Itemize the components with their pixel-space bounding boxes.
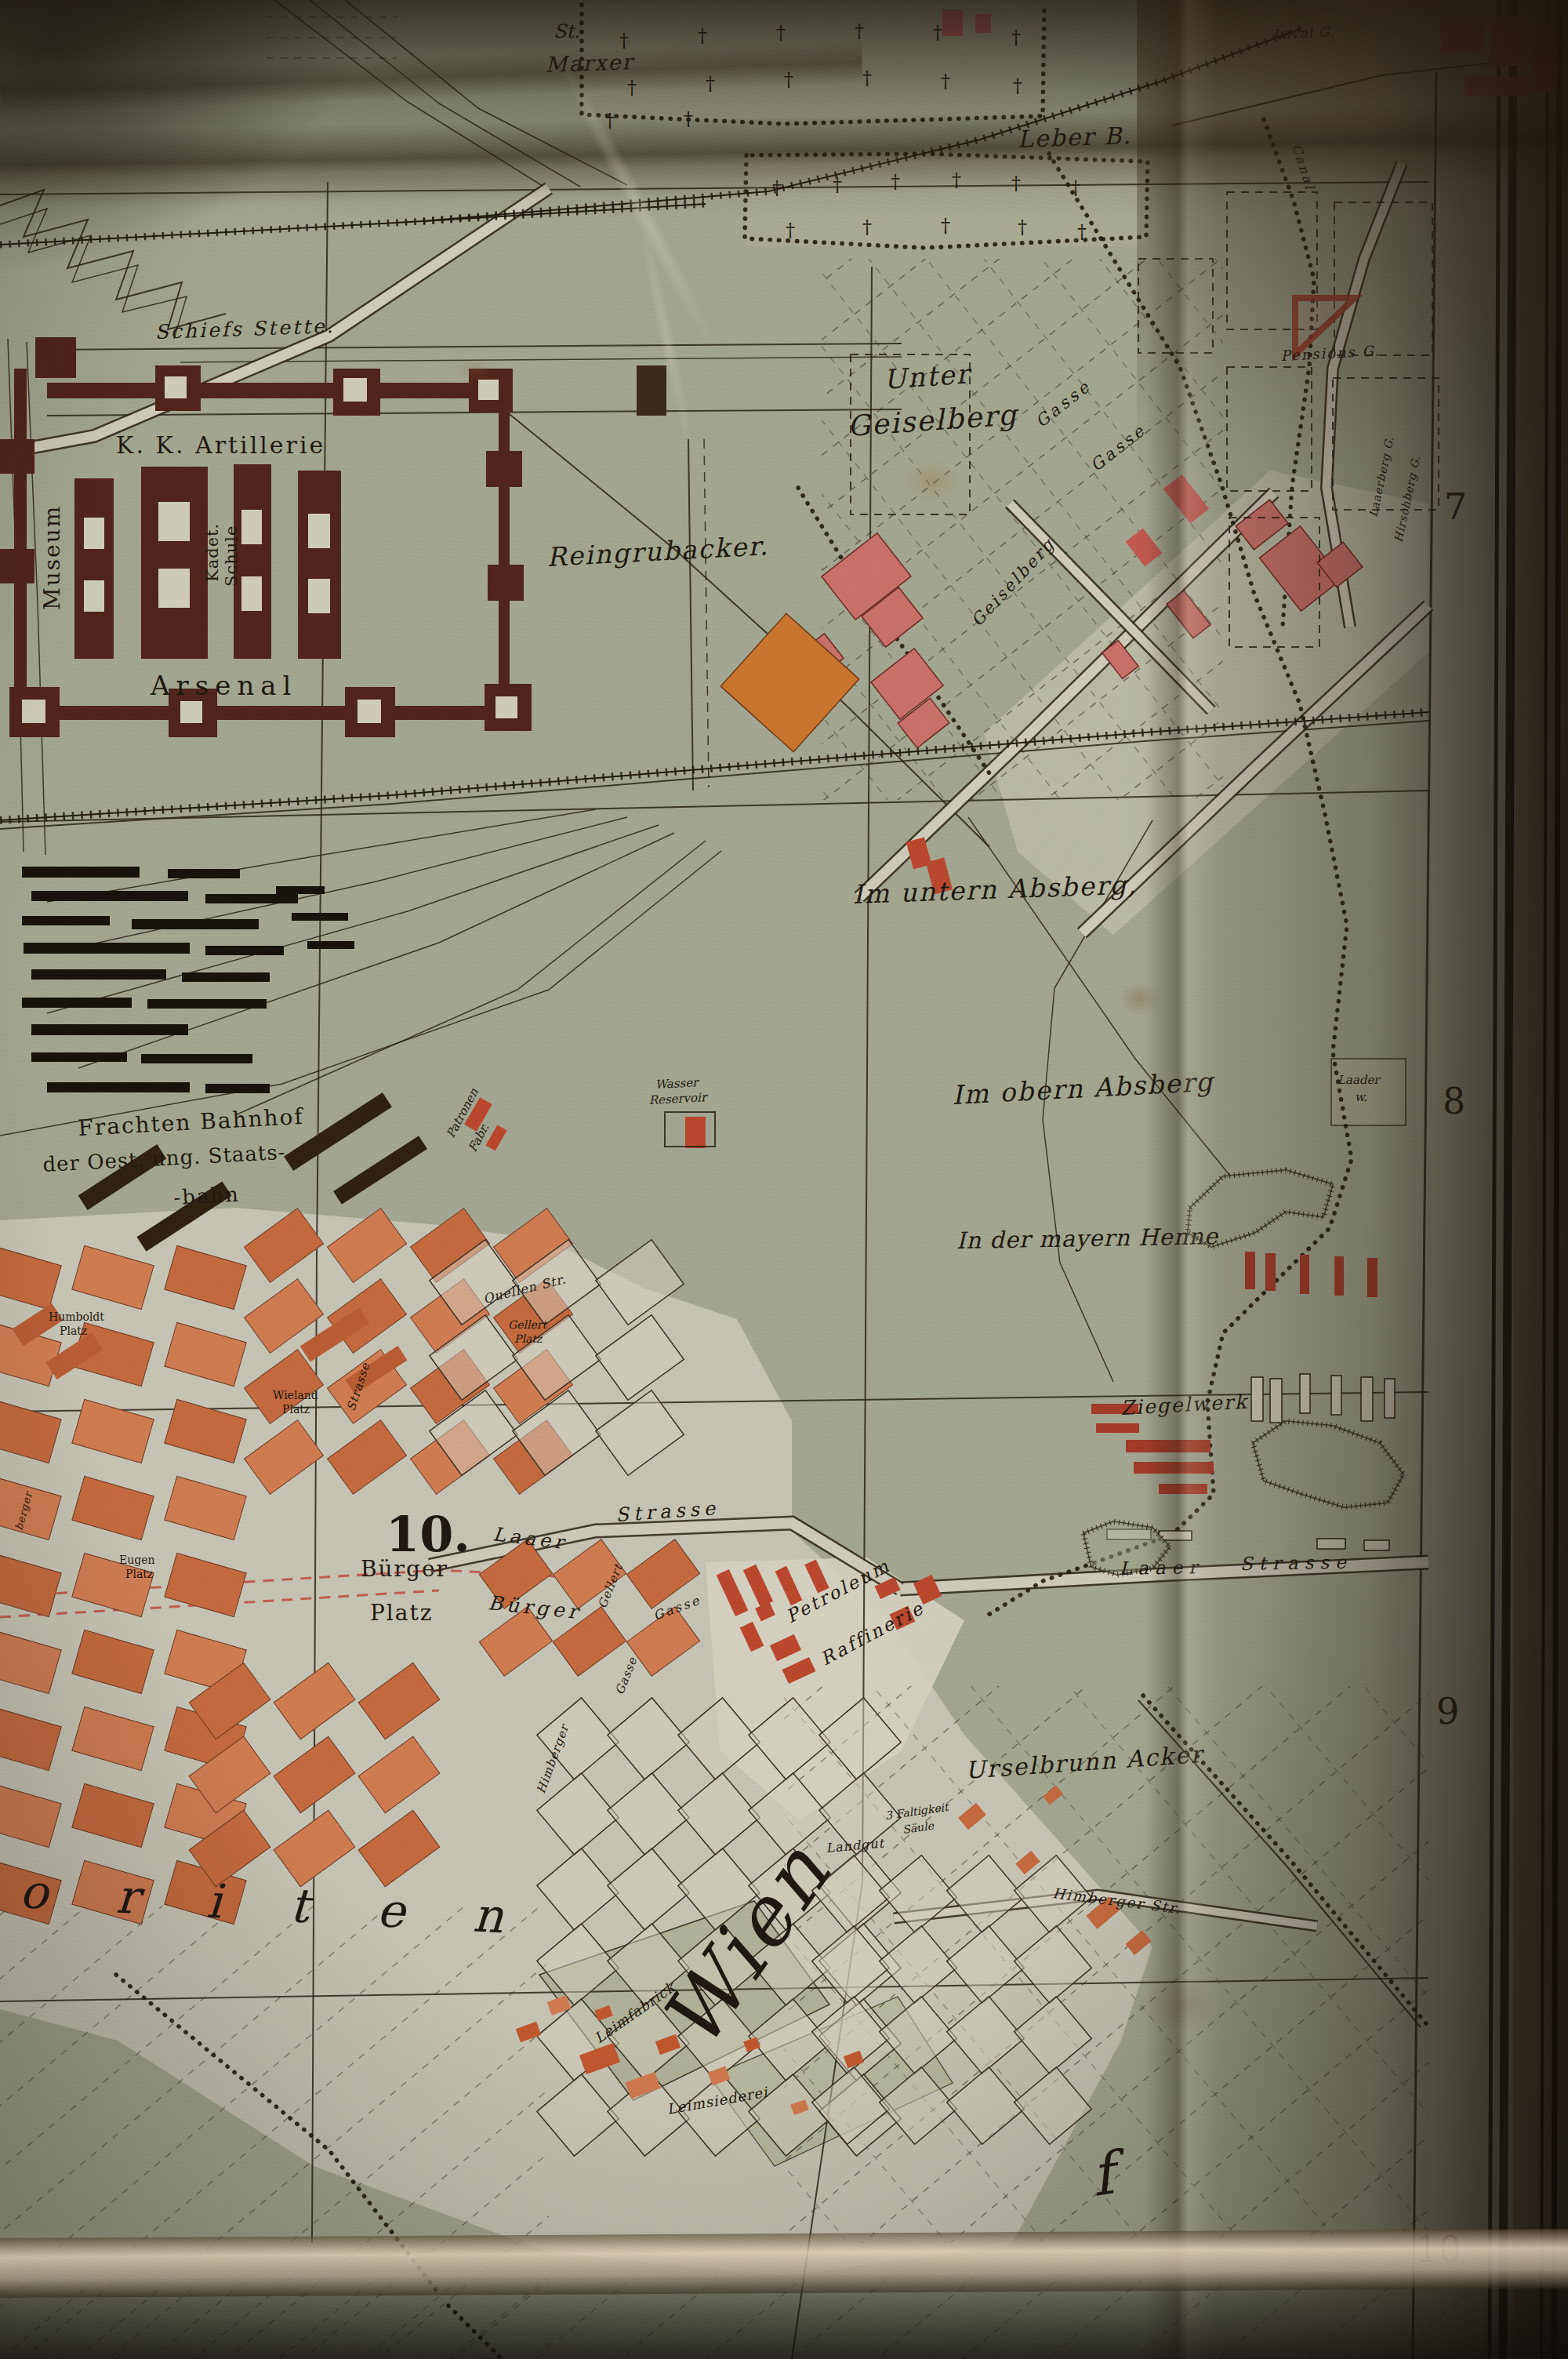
folded-paper-map-photo: †††††††††††††††††††††††††St.MarxerLeber … bbox=[0, 0, 1568, 2359]
map-label-kadet: Kadet. bbox=[203, 523, 222, 582]
grid-number-9: 9 bbox=[1436, 1690, 1459, 1732]
map-label-platz: Platz bbox=[514, 1332, 543, 1345]
building bbox=[165, 376, 187, 398]
cemetery-cross-icon: † bbox=[619, 30, 629, 52]
building bbox=[0, 439, 34, 474]
cemetery-cross-icon: † bbox=[1018, 216, 1027, 238]
cemetery-cross-icon: † bbox=[698, 25, 707, 47]
map-line bbox=[47, 343, 902, 350]
building bbox=[182, 972, 270, 982]
building bbox=[1385, 1379, 1395, 1418]
map-label-in-der-mayern-henne: In der mayern Henne bbox=[956, 1223, 1220, 1254]
building bbox=[22, 998, 132, 1008]
building bbox=[47, 383, 486, 398]
building bbox=[1245, 1252, 1255, 1289]
building bbox=[1317, 1539, 1345, 1549]
map-label-leber-b: Leber B. bbox=[1017, 122, 1132, 153]
map-label-platz: Platz bbox=[370, 1600, 434, 1626]
building bbox=[132, 919, 259, 929]
map-label-w: w. bbox=[1355, 1090, 1367, 1104]
cemetery-cross-icon: † bbox=[855, 20, 864, 42]
cemetery-cross-icon: † bbox=[941, 215, 950, 237]
cemetery-cross-icon: † bbox=[772, 177, 782, 199]
building bbox=[31, 1052, 127, 1062]
map-label-unter: Unter bbox=[883, 358, 974, 395]
map-label-marxer: Marxer bbox=[545, 49, 636, 77]
map-label-der-oest-ung-staats: der Oest. ung. Staats- bbox=[42, 1140, 286, 1176]
map-label-eugen: Eugen bbox=[119, 1554, 155, 1566]
map-label-platz: Platz bbox=[125, 1568, 153, 1580]
map-label-reservoir: Reservoir bbox=[648, 1090, 709, 1107]
map-label-reingrubacker: Reingrubacker. bbox=[546, 530, 769, 572]
map-label-laval-g: Laval G. bbox=[1272, 24, 1334, 42]
cemetery-cross-icon: † bbox=[941, 71, 950, 93]
building bbox=[1126, 1440, 1210, 1452]
map-label-gellert: Gellert bbox=[508, 1318, 547, 1331]
cemetery-cross-icon: † bbox=[833, 174, 842, 196]
map-label-schule: Schule bbox=[222, 525, 241, 587]
map-label-f: f bbox=[1087, 2137, 1132, 2209]
map-label-10: 10. bbox=[386, 1506, 470, 1563]
map-label-museum: Museum bbox=[39, 505, 65, 610]
map-label-humboldt: Humboldt bbox=[49, 1310, 104, 1323]
building bbox=[358, 700, 381, 723]
map-label-arsenal: Arsenal bbox=[150, 670, 297, 701]
hatched-pond bbox=[1253, 1421, 1403, 1507]
map-line bbox=[688, 439, 693, 791]
building bbox=[31, 891, 188, 901]
map-label-k-k-artillerie: K. K. Artillerie bbox=[116, 431, 325, 459]
map-label-st: St. bbox=[554, 20, 580, 42]
building bbox=[14, 369, 27, 698]
building bbox=[307, 941, 354, 949]
building bbox=[1300, 1374, 1310, 1413]
building bbox=[1043, 1786, 1063, 1805]
building bbox=[1361, 1377, 1373, 1421]
map-label-strasse: Strasse bbox=[1240, 1552, 1352, 1574]
building bbox=[1331, 1376, 1341, 1415]
map-label-laaer: Laaer bbox=[1120, 1557, 1204, 1579]
building bbox=[0, 549, 34, 583]
building bbox=[308, 579, 330, 613]
building bbox=[180, 701, 202, 723]
map-label-ziegelwerk: Ziegelwerk bbox=[1120, 1390, 1249, 1419]
cemetery-cross-icon: † bbox=[1011, 27, 1021, 49]
map-label-frachten-bahnhof: Frachten Bahnhof bbox=[78, 1103, 306, 1141]
building bbox=[1096, 1423, 1139, 1433]
building bbox=[1490, 16, 1526, 66]
building bbox=[47, 1082, 190, 1092]
map-line bbox=[0, 182, 1428, 194]
grid-number-7: 7 bbox=[1444, 485, 1467, 528]
building bbox=[158, 502, 190, 541]
building bbox=[495, 696, 517, 718]
cemetery-cross-icon: † bbox=[1077, 221, 1087, 243]
building bbox=[292, 913, 348, 921]
cemetery-cross-icon: † bbox=[952, 169, 961, 191]
map-label-b-rger: Bürger bbox=[361, 1556, 448, 1582]
map-label-gasse: Gasse bbox=[1032, 376, 1094, 431]
building bbox=[141, 467, 208, 659]
cemetery-cross-icon: † bbox=[862, 216, 872, 238]
building bbox=[1530, 27, 1557, 91]
map-line bbox=[310, 0, 580, 187]
building bbox=[31, 1024, 188, 1035]
cemetery-cross-icon: † bbox=[1013, 75, 1022, 97]
building bbox=[22, 867, 140, 878]
map-label-wieland: Wieland bbox=[273, 1389, 318, 1401]
cemetery-cross-icon: † bbox=[891, 171, 900, 193]
building bbox=[343, 378, 367, 402]
building bbox=[168, 869, 240, 878]
building bbox=[298, 471, 341, 659]
map-line bbox=[63, 817, 627, 951]
building bbox=[1441, 22, 1483, 53]
building bbox=[22, 916, 110, 925]
building bbox=[1126, 529, 1163, 567]
building bbox=[486, 451, 522, 487]
map-label-im-obern-absberg: Im obern Absberg bbox=[951, 1066, 1216, 1110]
map-line bbox=[502, 408, 989, 847]
building bbox=[1364, 1540, 1389, 1550]
cemetery-cross-icon: † bbox=[1011, 173, 1021, 194]
building bbox=[478, 380, 499, 400]
building bbox=[31, 969, 166, 980]
cemetery-cross-icon: † bbox=[706, 73, 715, 95]
building bbox=[158, 569, 190, 608]
building bbox=[22, 700, 45, 723]
cemetery-cross-icon: † bbox=[784, 69, 793, 91]
cemetery-cross-icon: † bbox=[1071, 177, 1080, 199]
building bbox=[1265, 1253, 1276, 1291]
cemetery-cross-icon: † bbox=[933, 22, 942, 44]
map-label-laader: Laader bbox=[1338, 1073, 1381, 1087]
map-label-platz: Platz bbox=[282, 1403, 310, 1416]
building bbox=[499, 369, 510, 698]
map-line bbox=[235, 841, 706, 1115]
building bbox=[276, 886, 325, 894]
building bbox=[84, 580, 104, 612]
building bbox=[1270, 1379, 1282, 1423]
building bbox=[720, 613, 859, 752]
building bbox=[84, 518, 104, 549]
building bbox=[488, 565, 524, 601]
map-label-bahn: -bahn bbox=[173, 1183, 241, 1209]
map-label-urselbrunn-acker: Urselbrunn Acker bbox=[964, 1740, 1207, 1784]
building bbox=[147, 999, 267, 1009]
building bbox=[16, 706, 517, 720]
building bbox=[205, 894, 298, 903]
building bbox=[205, 946, 284, 955]
terrain-patch bbox=[582, 3, 1044, 119]
map-label-geiselberg: Geiselberg bbox=[967, 534, 1059, 631]
building bbox=[35, 337, 76, 378]
city-map-drawing: †††††††††††††††††††††††††St.MarxerLeber … bbox=[0, 0, 1568, 2359]
map-line bbox=[0, 190, 226, 329]
building bbox=[205, 1084, 270, 1093]
outlined-feature bbox=[1138, 259, 1213, 353]
building bbox=[308, 514, 330, 548]
cemetery-cross-icon: † bbox=[786, 220, 795, 242]
building bbox=[241, 576, 262, 611]
building bbox=[942, 9, 963, 36]
grid-number-8: 8 bbox=[1443, 1080, 1465, 1122]
building bbox=[1251, 1377, 1263, 1421]
building bbox=[1159, 1484, 1207, 1494]
building bbox=[685, 1117, 706, 1148]
building bbox=[1367, 1258, 1377, 1297]
building bbox=[637, 365, 666, 416]
map-label-gasse: Gasse bbox=[1087, 420, 1149, 475]
map-label-canal: Canal bbox=[1289, 142, 1318, 193]
cemetery-cross-icon: † bbox=[605, 110, 615, 132]
cemetery-cross-icon: † bbox=[776, 22, 786, 44]
building bbox=[333, 1136, 427, 1205]
map-label-wasser: Wasser bbox=[655, 1075, 700, 1092]
building bbox=[241, 510, 262, 544]
map-label-platz: Platz bbox=[60, 1325, 87, 1337]
map-line bbox=[274, 0, 549, 190]
building bbox=[1300, 1255, 1309, 1294]
cemetery-cross-icon: † bbox=[862, 67, 872, 89]
terrain-patch bbox=[1331, 1059, 1406, 1125]
building bbox=[1163, 474, 1209, 524]
building bbox=[141, 1054, 252, 1063]
building bbox=[1465, 77, 1529, 96]
parcel-dash-field bbox=[238, 0, 422, 160]
building bbox=[24, 943, 190, 954]
map-line bbox=[704, 439, 709, 787]
cemetery-cross-icon: † bbox=[627, 77, 637, 99]
building bbox=[74, 478, 114, 659]
building bbox=[975, 14, 991, 33]
cemetery-cross-icon: † bbox=[684, 108, 693, 130]
dotted-boundary-path bbox=[448, 2306, 502, 2359]
building bbox=[1334, 1256, 1344, 1296]
grid-number-10: 10 bbox=[1416, 2228, 1462, 2270]
building bbox=[1134, 1462, 1214, 1474]
